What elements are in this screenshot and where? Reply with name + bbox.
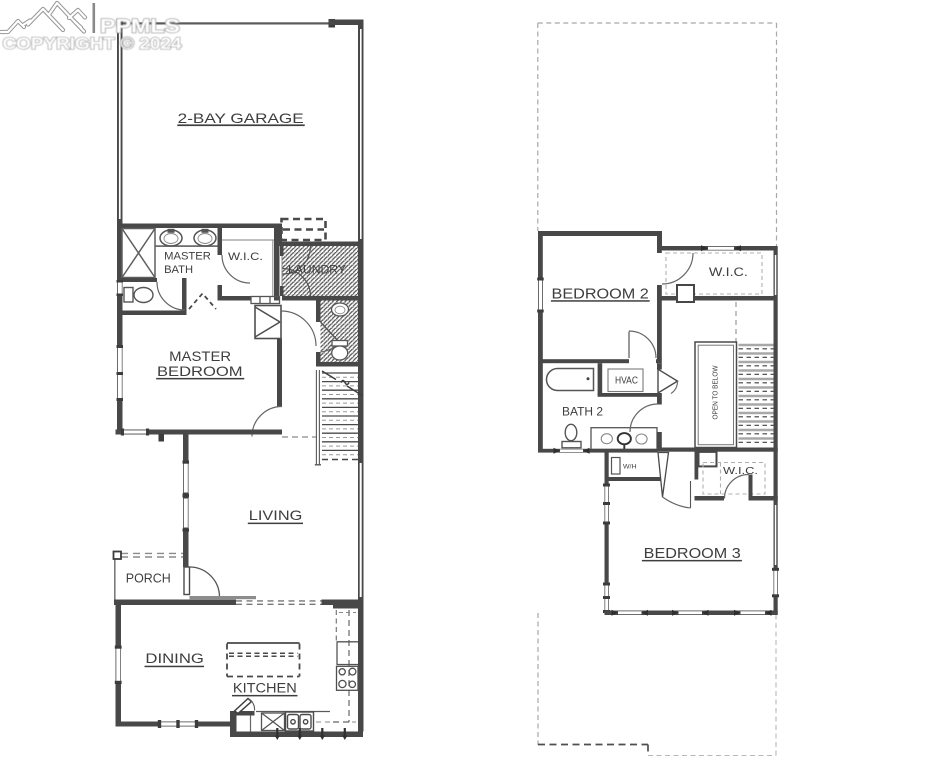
svg-text:BATH: BATH — [164, 264, 193, 276]
svg-text:BEDROOM 2: BEDROOM 2 — [552, 285, 649, 302]
svg-text:LIVING: LIVING — [249, 507, 302, 523]
svg-text:W.I.C.: W.I.C. — [723, 465, 758, 477]
svg-text:MASTER: MASTER — [169, 348, 231, 364]
svg-text:HVAC: HVAC — [615, 376, 638, 387]
svg-text:PORCH: PORCH — [126, 572, 171, 586]
svg-text:BATH 2: BATH 2 — [562, 407, 603, 419]
svg-text:KITCHEN: KITCHEN — [233, 680, 297, 695]
svg-text:BEDROOM: BEDROOM — [157, 363, 243, 379]
svg-text:W.I.C.: W.I.C. — [709, 267, 748, 279]
svg-text:OPEN TO BELOW: OPEN TO BELOW — [713, 365, 720, 419]
svg-text:DINING: DINING — [145, 651, 204, 666]
svg-text:W/H: W/H — [623, 464, 637, 471]
svg-text:LAUNDRY: LAUNDRY — [288, 263, 346, 277]
svg-text:W.I.C.: W.I.C. — [228, 251, 263, 263]
svg-text:2-BAY GARAGE: 2-BAY GARAGE — [178, 110, 304, 126]
svg-text:BEDROOM 3: BEDROOM 3 — [644, 545, 741, 562]
svg-text:MASTER: MASTER — [164, 251, 211, 263]
svg-text:COPYRIGHT © 2024: COPYRIGHT © 2024 — [3, 35, 183, 53]
